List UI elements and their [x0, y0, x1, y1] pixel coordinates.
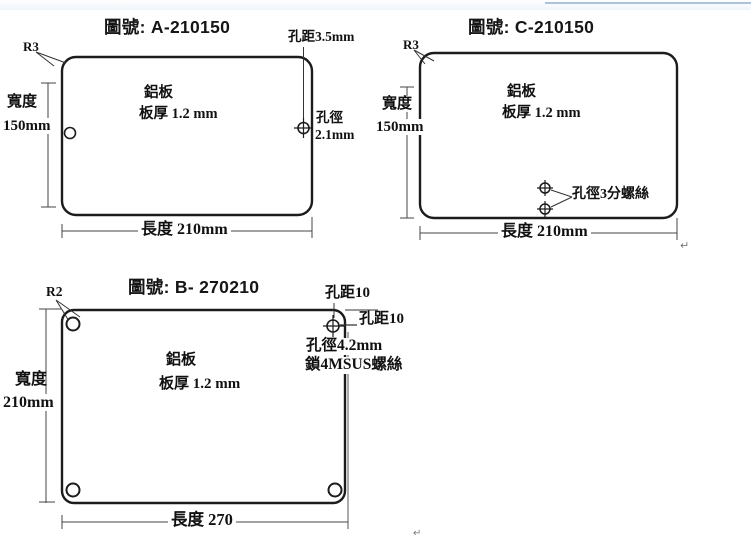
plate-a-hole-pitch-label: 孔距3.5mm: [288, 30, 354, 45]
plate-b-top-right-hole-crosshair: [323, 315, 344, 337]
plate-b-radius-label: R2: [46, 285, 63, 300]
plate-a-radius-leader: [36, 52, 66, 66]
plate-b-title: 圖號: B- 270210: [128, 274, 259, 299]
plate-c-title: 圖號: C-210150: [468, 14, 594, 39]
plate-a-right-hole-crosshair: [294, 118, 313, 138]
plate-b-hole-dia-label: 孔徑4.2mm: [303, 338, 385, 355]
plate-a-radius-label: R3: [23, 40, 39, 54]
plate-c-holes-leader: [551, 190, 572, 207]
plate-a-thickness-label: 板厚 1.2 mm: [139, 107, 218, 123]
plate-a-width-value: 150mm: [0, 118, 54, 134]
plate-c-lower-hole-crosshair: [537, 201, 553, 217]
plate-c-width-value: 150mm: [373, 119, 427, 135]
plate-a-left-hole: [65, 128, 76, 139]
plate-a-width-label: 寬度: [7, 94, 37, 110]
plate-b-width-label: 寬度: [15, 371, 47, 388]
plate-c-radius-label: R3: [403, 38, 419, 52]
plate-c-material-label: 鋁板: [507, 85, 536, 101]
plate-b-length-label: 長度 270: [168, 511, 236, 529]
plate-c-hole-label: 孔徑3分螺絲: [572, 187, 649, 202]
plate-b-bottom-right-hole: [329, 484, 342, 497]
plate-b-thickness-label: 板厚 1.2 mm: [159, 376, 240, 392]
plate-c-width-label: 寬度: [379, 96, 415, 112]
drawing-linework: [0, 0, 751, 554]
plate-a-hole-dia-value: 2.1mm: [315, 128, 354, 143]
plate-b-bottom-left-hole: [67, 484, 80, 497]
paragraph-mark-c: ↵: [680, 239, 689, 252]
drawing-canvas: 圖號: A-210150 R3 孔距3.5mm 寬度 150mm 鋁板 板厚 1…: [0, 0, 751, 554]
plate-c-length-label: 長度 210mm: [498, 223, 591, 240]
plate-a-length-label: 長度 210mm: [138, 221, 231, 238]
plate-a-title: 圖號: A-210150: [104, 14, 230, 39]
paragraph-mark-b: ↵: [413, 528, 421, 539]
plate-b-hole-pitch-right-label: 孔距10: [359, 311, 404, 327]
plate-a-material-label: 鋁板: [144, 86, 173, 102]
plate-a-outline: [62, 57, 312, 215]
plate-c-upper-hole-crosshair: [537, 180, 553, 196]
plate-b-width-value: 210mm: [0, 394, 57, 411]
plate-b-hole-pitch-top-label: 孔距10: [325, 285, 370, 301]
plate-a-width-dimension-line: [41, 83, 56, 207]
plate-b-top-left-hole: [67, 318, 80, 331]
plate-b-screw-label: 鎖4MSUS螺絲: [302, 357, 405, 374]
plate-a-hole-dia-label: 孔徑: [316, 111, 343, 126]
plate-b-material-label: 鋁板: [166, 352, 196, 368]
plate-c-thickness-label: 板厚 1.2 mm: [502, 106, 581, 122]
